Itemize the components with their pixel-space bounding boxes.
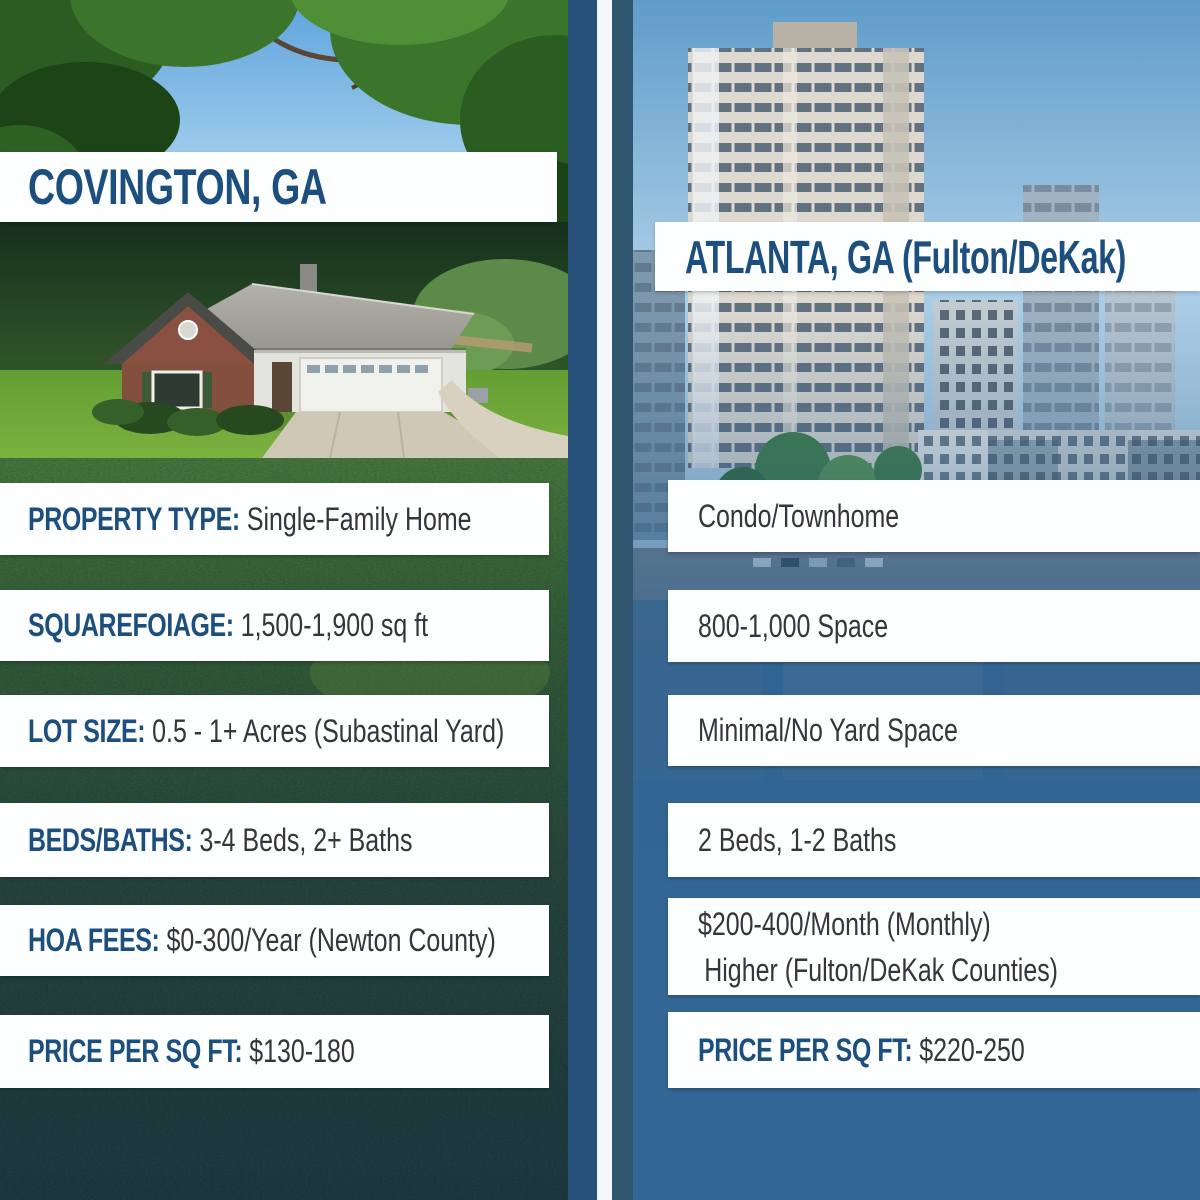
beds-baths-row-atlanta: 2 Beds, 1-2 Baths: [668, 803, 1200, 877]
divider-stripe-right: [612, 0, 633, 1200]
hoa-fees-row-atlanta: $200-400/Month (Monthly) Higher (Fulton/…: [668, 898, 1200, 995]
hoa-fees-value-atlanta-line2: Higher (Fulton/DeKak Counties): [698, 947, 1058, 993]
atlanta-title: ATLANTA, GA (Fulton/DeKak): [685, 230, 1126, 284]
divider-stripe-left: [568, 0, 597, 1200]
hoa-fees-value-atlanta-line1: $200-400/Month (Monthly): [698, 901, 1058, 947]
lot-size-row: LOT SIZE:0.5 - 1+ Acres (Subastinal Yard…: [0, 695, 549, 767]
price-per-sqft-row-left: PRICE PER SQ FT:$130-180: [0, 1015, 549, 1088]
hoa-fees-row: HOA FEES:$0-300/Year (Newton County): [0, 905, 549, 976]
square-footage-row: SQUAREFOIAGE:1,500-1,900 sq ft: [0, 590, 549, 661]
property-type-row: PROPERTY TYPE:Single-Family Home: [0, 483, 549, 555]
beds-baths-value-atlanta: 2 Beds, 1-2 Baths: [698, 822, 896, 858]
hoa-fees-value: $0-300/Year (Newton County): [166, 922, 495, 958]
atlanta-title-bar: ATLANTA, GA (Fulton/DeKak): [655, 222, 1200, 291]
beds-baths-label: BEDS/BATHS:: [28, 822, 192, 858]
property-type-value: Single-Family Home: [247, 501, 472, 537]
price-per-sqft-value-left: $130-180: [249, 1033, 354, 1069]
hoa-fees-label: HOA FEES:: [28, 922, 159, 958]
square-footage-value: 1,500-1,900 sq ft: [241, 607, 428, 643]
square-footage-label: SQUAREFOIAGE:: [28, 607, 234, 643]
covington-title-bar: COVINGTON, GA: [0, 152, 557, 222]
lot-size-label: LOT SIZE:: [28, 713, 145, 749]
square-footage-row-atlanta: 800-1,000 Space: [668, 590, 1200, 662]
lot-size-value: 0.5 - 1+ Acres (Subastinal Yard): [152, 713, 504, 749]
house-photo: [0, 222, 568, 458]
property-type-row-atlanta: Condo/Townhome: [668, 480, 1200, 552]
atlanta-panel: ATLANTA, GA (Fulton/DeKak) Condo/Townhom…: [633, 0, 1200, 1200]
comparison-infographic: COVINGTON, GA PROPERTY TYPE:Single-Famil…: [0, 0, 1200, 1200]
lot-size-value-atlanta: Minimal/No Yard Space: [698, 712, 958, 748]
property-type-value-atlanta: Condo/Townhome: [698, 498, 899, 534]
divider-stripe-center: [597, 0, 612, 1200]
beds-baths-row: BEDS/BATHS:3-4 Beds, 2+ Baths: [0, 803, 549, 877]
covington-panel: COVINGTON, GA PROPERTY TYPE:Single-Famil…: [0, 0, 568, 1200]
property-type-label: PROPERTY TYPE:: [28, 501, 240, 537]
price-per-sqft-value-atlanta: $220-250: [919, 1032, 1024, 1068]
lot-size-row-atlanta: Minimal/No Yard Space: [668, 695, 1200, 766]
square-footage-value-atlanta: 800-1,000 Space: [698, 608, 888, 644]
price-per-sqft-label-atlanta: PRICE PER SQ FT:: [698, 1032, 912, 1068]
beds-baths-value: 3-4 Beds, 2+ Baths: [199, 822, 412, 858]
covington-title: COVINGTON, GA: [28, 158, 327, 216]
price-per-sqft-row-atlanta: PRICE PER SQ FT:$220-250: [668, 1012, 1200, 1088]
price-per-sqft-label-left: PRICE PER SQ FT:: [28, 1033, 242, 1069]
